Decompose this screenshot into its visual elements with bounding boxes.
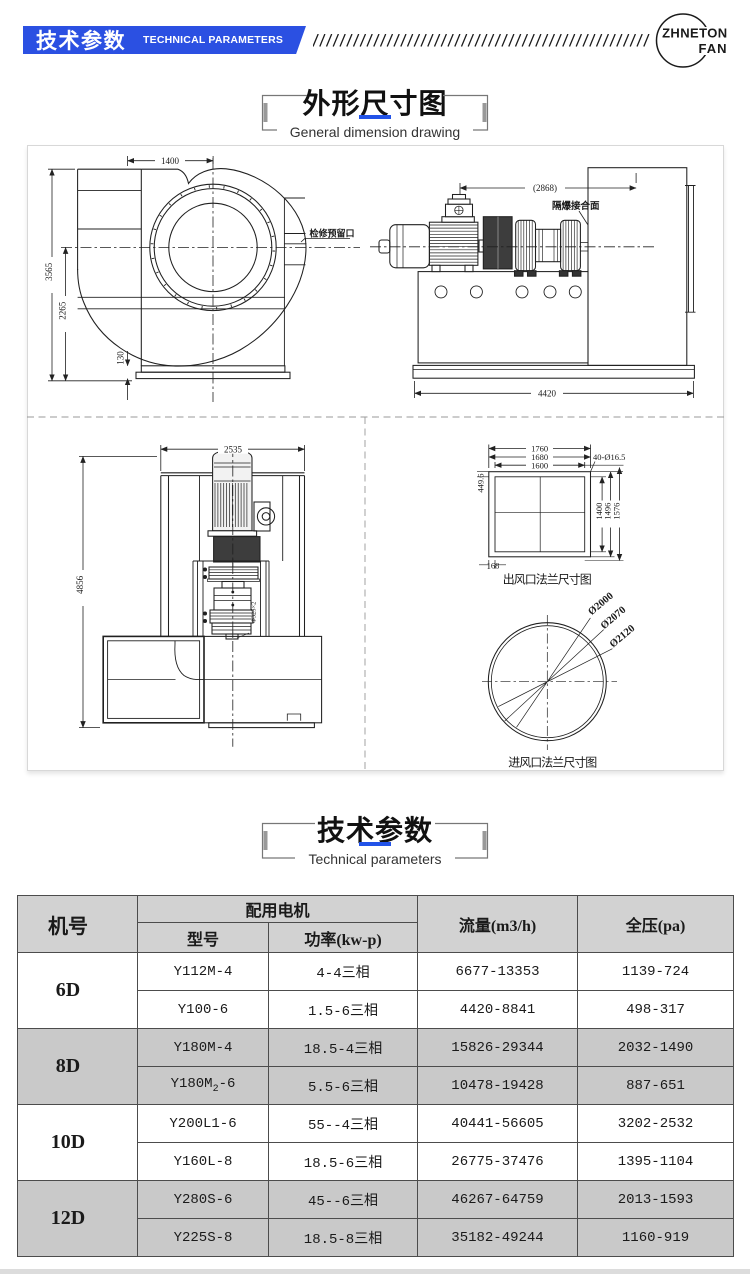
svg-text:隔爆接合面: 隔爆接合面 xyxy=(552,200,600,212)
svg-text:4856: 4856 xyxy=(75,575,85,594)
svg-text:40-Ø16.5: 40-Ø16.5 xyxy=(593,452,625,462)
svg-text:(2868): (2868) xyxy=(533,183,557,193)
svg-text:检修预留口: 检修预留口 xyxy=(310,228,355,239)
svg-text:1400: 1400 xyxy=(161,156,180,166)
svg-text:3565: 3565 xyxy=(44,262,54,281)
svg-text:2265: 2265 xyxy=(58,301,68,320)
svg-text:1600: 1600 xyxy=(531,460,548,470)
svg-text:Ø2120: Ø2120 xyxy=(608,623,637,650)
svg-text:FAN: FAN xyxy=(699,41,728,56)
svg-text:130: 130 xyxy=(116,351,126,365)
svg-text:2535: 2535 xyxy=(224,444,243,454)
svg-text:4420: 4420 xyxy=(538,389,557,399)
svg-text:ZHNETON: ZHNETON xyxy=(662,26,727,41)
svg-text:出风口法兰尺寸图: 出风口法兰尺寸图 xyxy=(503,573,591,587)
svg-text:449.6: 449.6 xyxy=(476,473,486,492)
svg-text:进风口法兰尺寸图: 进风口法兰尺寸图 xyxy=(508,756,596,770)
svg-text:1576: 1576 xyxy=(612,503,622,520)
svg-text:Φ325×2: Φ325×2 xyxy=(251,602,258,623)
